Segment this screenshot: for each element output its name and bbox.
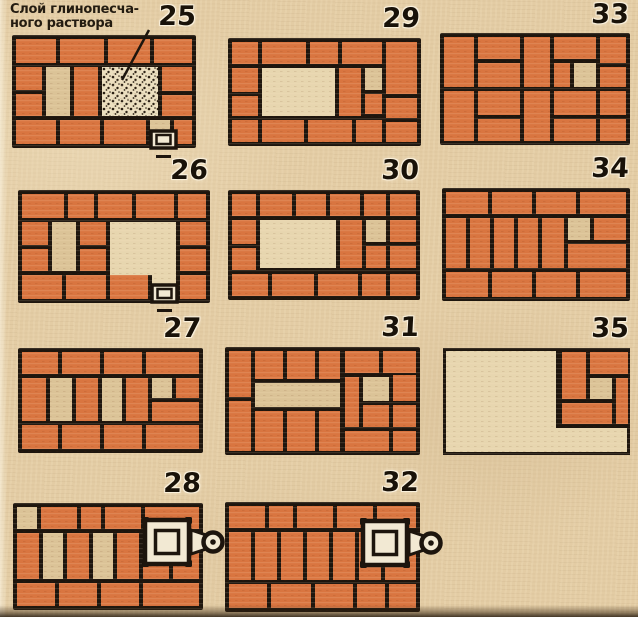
brick [345,431,389,451]
mortar-label-line2: ного раствора [10,17,139,31]
plan-31 [225,347,420,455]
brick [600,67,626,87]
cleanout-door-icon [151,131,176,158]
page-edge-shadow [0,605,638,617]
scanned-stove-course-page: Слой глинопесча- ного раствора 252627282… [0,0,638,617]
brick [446,192,488,214]
brick [297,506,333,528]
brick [616,378,628,424]
brick [356,120,382,142]
brick [345,351,379,373]
brick [22,378,46,421]
brick [117,533,139,579]
brick [22,275,62,299]
brick [366,246,386,268]
plan-34 [442,188,630,301]
brick [333,532,355,580]
brick [478,37,520,59]
brick [146,352,199,374]
brick [16,67,42,90]
brick [180,275,206,299]
brick [393,431,416,451]
plan-25 [12,35,196,148]
brick [339,68,361,116]
plan-number-33: 33 [580,0,630,30]
brick [393,375,416,401]
brick [390,220,416,242]
brick [362,274,386,296]
brick [390,194,416,216]
brick [22,222,48,245]
brick [444,91,474,141]
brick [524,91,550,141]
brick [98,194,132,218]
brick [229,506,265,528]
brick [363,377,389,401]
brick [319,351,340,379]
brick [232,42,258,64]
brick [492,192,532,214]
brick [17,583,55,606]
brick [342,42,382,64]
brick [365,68,382,90]
brick [152,402,199,421]
brick [386,42,417,94]
brick [162,95,192,116]
brick [104,425,142,449]
brick [554,119,596,141]
brick [74,67,98,116]
brick [308,120,352,142]
brick [76,378,98,421]
brick [518,218,538,268]
plan-number-31: 31 [370,313,420,343]
brick [16,120,56,144]
brick [60,39,104,63]
mortar-label: Слой глинопесча- ного раствора [10,3,139,30]
mortar-area [102,67,158,116]
brick [383,351,416,373]
brick [104,352,142,374]
brick [16,39,56,63]
brick [590,378,612,399]
plan-number-35: 35 [580,314,630,344]
brick [590,352,628,374]
opening [262,68,335,116]
brick [22,352,58,374]
brick [446,272,488,297]
damper-valve-icon [360,518,441,568]
brick [554,91,596,115]
brick [366,220,386,242]
brick [536,272,576,297]
brick [330,194,360,216]
brick [524,37,550,87]
brick [562,352,586,399]
brick [255,532,277,580]
brick [176,378,199,398]
brick [340,220,362,268]
plan-33 [440,33,630,145]
brick [143,583,199,606]
brick [67,533,89,579]
brick [272,274,314,296]
brick [81,507,101,529]
brick [60,120,100,144]
brick [260,194,292,216]
brick [568,218,590,240]
brick [386,122,417,142]
plan-number-27: 27 [152,314,202,344]
opening [110,222,176,275]
brick [229,532,251,580]
plan-number-32: 32 [370,468,420,498]
brick [232,248,256,270]
damper-valve-icon [142,517,223,567]
brick [444,37,474,87]
brick [554,37,596,59]
brick [232,220,256,244]
brick [162,67,192,91]
brick [93,533,113,579]
brick [580,272,626,297]
page-edge-highlight [0,0,7,617]
plan-30 [228,190,420,300]
brick [574,63,596,87]
brick [318,274,358,296]
brick [478,119,520,141]
brick [446,218,466,268]
brick [600,37,626,63]
brick [390,274,416,296]
plan-number-26: 26 [159,156,209,186]
opening [260,220,336,268]
brick [17,533,39,579]
brick [62,425,100,449]
plan-32 [225,502,420,612]
brick [255,383,340,407]
brick [562,403,612,424]
brick [296,194,326,216]
brick [50,378,72,421]
brick [22,249,48,271]
brick [232,194,256,216]
brick [281,532,303,580]
brick [16,94,42,116]
plan-number-34: 34 [580,154,630,184]
plan-26 [18,190,210,303]
brick [46,67,70,116]
brick [470,218,490,268]
brick [580,192,626,214]
brick [594,218,626,240]
brick [108,39,150,63]
brick [232,120,258,142]
brick [262,42,306,64]
brick [41,507,77,529]
brick [600,119,626,141]
brick [287,351,315,379]
brick [255,351,283,379]
brick [229,351,251,397]
plan-27 [18,348,203,453]
brick [478,91,520,115]
plan-number-30: 30 [370,156,420,186]
brick [232,274,268,296]
plan-number-28: 28 [152,469,202,499]
brick [43,533,63,579]
brick [393,405,416,427]
brick [22,194,64,218]
brick [62,352,100,374]
brick [80,249,106,271]
brick [229,401,251,451]
brick [232,96,258,116]
brick [307,532,329,580]
brick [364,194,386,216]
brick [390,246,416,268]
brick [536,192,576,214]
plan-29 [228,38,421,146]
brick [600,91,626,115]
brick [152,378,172,398]
brick [492,272,532,297]
brick [68,194,94,218]
brick [269,506,293,528]
plan-28 [13,503,203,610]
brick [262,120,304,142]
plan-35 [443,348,630,455]
brick [59,583,97,606]
brick [345,377,359,427]
brick [180,249,206,271]
plan-number-25: 25 [147,2,197,32]
brick [80,222,106,245]
brick [110,275,148,299]
brick [180,222,206,245]
brick [146,425,199,449]
brick [287,411,315,451]
cleanout-door-icon [152,285,177,312]
plan-number-29: 29 [371,4,421,34]
brick [126,378,148,421]
brick [255,411,283,451]
brick [554,63,570,87]
brick [105,507,141,529]
brick [568,244,626,268]
brick [136,194,174,218]
brick [17,507,37,529]
brick [319,411,340,451]
mortar-label-line1: Слой глинопесча- [10,3,139,17]
brick [102,378,122,421]
brick [365,94,382,114]
brick [66,275,106,299]
brick [22,425,58,449]
brick [494,218,514,268]
brick [52,222,76,271]
brick [178,194,206,218]
brick [542,218,564,268]
brick [154,39,192,63]
brick [232,68,258,92]
brick [310,42,338,64]
brick [363,405,389,427]
brick [478,63,520,87]
brick [101,583,139,606]
brick [386,98,417,118]
brick [104,120,146,144]
